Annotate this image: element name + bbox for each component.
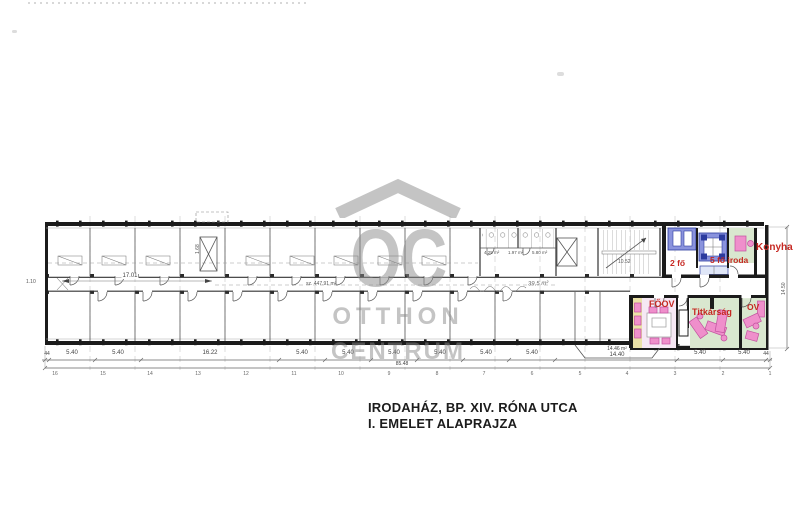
drawing-title: IRODAHÁZ, BP. XIV. RÓNA UTCA I. EMELET A… — [368, 400, 578, 432]
title-line-2: I. EMELET ALAPRAJZA — [368, 416, 578, 432]
room-titkarsag — [689, 298, 739, 348]
shaft-dim-label: 1.68 — [195, 244, 201, 254]
dim-label: 5.40 — [66, 350, 78, 356]
dim-label: 14.40 — [609, 352, 624, 358]
grid-number: 4 — [626, 371, 629, 377]
wc-area-label: 5.80 m² — [532, 250, 547, 255]
dim-label: 5.40 — [342, 350, 354, 356]
scanned-floorplan-page: 44 5.40 5.40 16.22 5.40 5.40 5.40 5.40 5… — [0, 0, 800, 531]
dim-label: 16.22 — [202, 350, 217, 356]
handwritten-area-label: 39,5 m² — [528, 281, 549, 288]
dim-label: 5.40 — [526, 350, 538, 356]
roof-access-outline — [196, 212, 228, 222]
grid-number: 8 — [436, 371, 439, 377]
bay-area-label: 14.46 m² — [607, 346, 627, 352]
grid-number: 9 — [388, 371, 391, 377]
corridor-length-label: 17.01 — [121, 273, 138, 279]
cabinets — [58, 256, 446, 265]
lower-partitions — [90, 292, 600, 341]
grid-number: 6 — [531, 371, 534, 377]
grid-number: 11 — [291, 371, 296, 377]
corridor-area-label: sz. 447.91 m² — [306, 281, 336, 287]
title-line-1: IRODAHÁZ, BP. XIV. RÓNA UTCA — [368, 400, 578, 416]
grid-number: 1 — [769, 371, 772, 377]
dim-label: 5.40 — [296, 350, 308, 356]
dim-label: 5.40 — [480, 350, 492, 356]
shaft-left — [200, 237, 217, 271]
grid-number: 7 — [483, 371, 486, 377]
dim-label: 5.40 — [388, 350, 400, 356]
stair-area-label: 10.52 — [618, 259, 631, 265]
grid-number: 5 — [579, 371, 582, 377]
grid-number: 16 — [52, 371, 58, 377]
grid-number: 3 — [674, 371, 677, 377]
room-label-2fo: 2 fő — [670, 258, 685, 268]
dim-label: 44 — [44, 351, 50, 357]
corridor-width-label: 1.10 — [26, 279, 36, 285]
wc-area-label: 4.25 m² — [484, 250, 499, 255]
dim-label: 5.40 — [738, 350, 750, 356]
upper-partitions — [90, 228, 450, 276]
room-label-ov: OV — [747, 302, 759, 312]
right-height-label: 14.50 — [781, 282, 787, 295]
wc-area-label: 1.97 m² — [508, 250, 523, 255]
grid-number: 14 — [147, 371, 153, 377]
room-5fo — [699, 233, 728, 275]
staircase — [602, 230, 656, 274]
vestibule-door-leaf — [679, 310, 688, 336]
dim-label: 5.40 — [112, 350, 124, 356]
room-label-foov: FŐOV — [649, 299, 675, 309]
dim-total-label: 85.48 — [395, 361, 410, 367]
grid-number: 13 — [195, 371, 201, 377]
room-label-titkarsag: Titkárság — [692, 307, 732, 317]
room-2fo — [668, 228, 696, 250]
dim-label: 44 — [763, 351, 769, 357]
dim-label: 5.40 — [694, 350, 706, 356]
room-label-5fo: 5 fő iroda — [710, 255, 748, 265]
grid-number: 10 — [338, 371, 344, 377]
room-label-konyha: Konyha — [756, 242, 793, 253]
grid-number: 12 — [243, 371, 249, 377]
grid-number: 2 — [722, 371, 725, 377]
shaft-right — [557, 238, 577, 266]
grid-number: 15 — [100, 371, 106, 377]
dim-label: 5.40 — [434, 350, 446, 356]
